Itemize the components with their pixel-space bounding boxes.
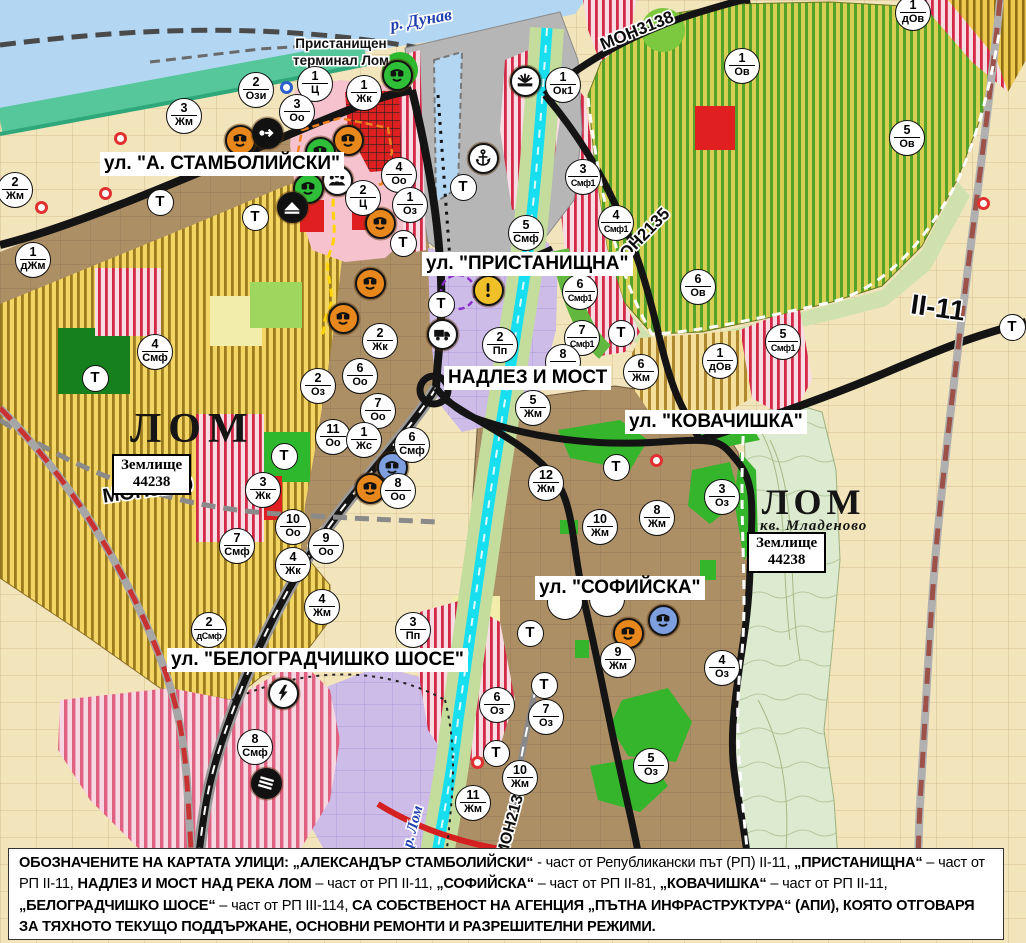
monument-icon	[333, 125, 364, 156]
one-way-arrow-icon	[252, 118, 283, 149]
street-label: ул. "БЕЛОГРАДЧИШКО ШОСЕ"	[167, 648, 468, 672]
zone-marker: 1Ок1	[545, 67, 581, 103]
zone-marker: 7Смф	[219, 528, 255, 564]
mound-icon	[277, 192, 308, 223]
zone-marker: 5Смф	[508, 215, 544, 251]
point-marker	[99, 187, 112, 200]
footer-text-run: НАДЛЕЗ И МОСТ НАД РЕКА ЛОМ	[78, 876, 312, 892]
plate-line1: Землище	[121, 457, 182, 474]
city-name: ЛОМ	[762, 482, 866, 522]
zone-marker: 7Оз	[528, 699, 564, 735]
zone-marker: 3Жк	[245, 472, 281, 508]
zone-marker: 6Оо	[342, 358, 378, 394]
plate-line2: 44238	[756, 552, 817, 569]
transport-stop-marker: Т	[517, 620, 544, 647]
zone-marker: 4Оз	[704, 650, 740, 686]
street-label: ул. "ПРИСТАНИЩНА"	[422, 252, 633, 276]
land-plate-44238-east: Землище 44238	[747, 532, 826, 573]
zone-marker: 2Жк	[362, 323, 398, 359]
footer-text-run: ОБОЗНАЧЕНИТЕ НА КАРТАТА УЛИЦИ: „АЛЕКСАНД…	[19, 855, 533, 871]
zone-marker: 4Смф1	[598, 205, 634, 241]
transport-stop-marker: Т	[271, 443, 298, 470]
anchor-icon	[468, 143, 499, 174]
zone-marker: 2дСмф	[191, 612, 227, 648]
monument-icon	[648, 605, 679, 636]
harbor-light-icon	[510, 66, 541, 97]
power-icon	[268, 678, 299, 709]
transport-stop-marker: Т	[390, 230, 417, 257]
city-label-lom: ЛОМ	[130, 408, 255, 450]
transport-stop-marker: Т	[82, 365, 109, 392]
zone-marker: 3Оо	[279, 94, 315, 130]
monument-icon	[225, 125, 256, 156]
zone-marker: 4Жм	[304, 589, 340, 625]
city-label-lom-mladenovo: ЛОМ кв. Младеново	[760, 484, 867, 535]
zone-marker: 3Жм	[166, 98, 202, 134]
street-label: ул. "А. СТАМБОЛИЙСКИ"	[100, 152, 344, 176]
zone-marker: 8Жм	[639, 500, 675, 536]
footer-text-run: – част от РП II-11,	[767, 876, 888, 892]
footer-note: ОБОЗНАЧЕНИТЕ НА КАРТАТА УЛИЦИ: „АЛЕКСАНД…	[8, 848, 1004, 940]
zone-marker: 6Оз	[479, 687, 515, 723]
zone-marker: 9Оо	[308, 528, 344, 564]
transport-stop-marker: Т	[531, 672, 558, 699]
transport-stop-marker: Т	[483, 740, 510, 767]
zone-marker: 4Смф	[137, 334, 173, 370]
zone-marker: 12Жм	[528, 465, 564, 501]
zone-marker: 10Жм	[582, 509, 618, 545]
zone-marker: 8Оо	[380, 473, 416, 509]
footer-text-run: – част от РП III-114,	[215, 898, 352, 914]
zone-marker: 1Жс	[346, 422, 382, 458]
point-marker	[977, 197, 990, 210]
zone-marker: 1Жк	[346, 75, 382, 111]
zone-marker: 1дЖм	[15, 242, 51, 278]
zone-marker: 8Смф	[237, 729, 273, 765]
transport-stop-marker: Т	[428, 291, 455, 318]
zone-marker: 2Пп	[482, 327, 518, 363]
zone-marker: 6Ов	[680, 269, 716, 305]
transport-stop-marker: Т	[450, 174, 477, 201]
transport-stop-marker: Т	[242, 204, 269, 231]
point-marker	[114, 132, 127, 145]
footer-text-run: – част от РП II-11,	[312, 876, 437, 892]
zone-marker: 6Жм	[623, 354, 659, 390]
city-plan-map: р. Дунав Пристанищен терминал Лом р. Лом…	[0, 0, 1026, 943]
zone-marker: 10Жм	[502, 760, 538, 796]
zone-marker: 6Смф	[394, 427, 430, 463]
footer-text-run: - част от Републикански път (РП) II-11,	[533, 855, 794, 871]
footer-text-run: „КОВАЧИШКА“	[660, 876, 767, 892]
zone-marker: 1дОв	[702, 343, 738, 379]
footer-text-run: „БЕЛОГРАДЧИШКО ШОСЕ“	[19, 898, 215, 914]
port-terminal-line1: Пристанищен	[266, 36, 416, 53]
point-marker	[35, 201, 48, 214]
point-marker	[471, 756, 484, 769]
zone-marker: 9Жм	[600, 642, 636, 678]
city-name: ЛОМ	[130, 406, 255, 452]
zone-marker: 5Жм	[515, 390, 551, 426]
warning-icon	[473, 275, 504, 306]
footer-text-run: „ПРИСТАНИЩНА“	[794, 855, 922, 871]
zone-marker: 10Оо	[275, 509, 311, 545]
monument-icon	[382, 60, 413, 91]
footer-text-run: „СОФИЙСКА“	[436, 876, 534, 892]
railway-icon	[251, 768, 282, 799]
point-marker	[650, 454, 663, 467]
zone-marker: 3Оз	[704, 479, 740, 515]
zone-marker: 2Ц	[345, 180, 381, 216]
street-label: ул. "СОФИЙСКА"	[535, 576, 705, 600]
zone-marker: 6Смф1	[562, 274, 598, 310]
plate-line2: 44238	[121, 474, 182, 491]
zone-marker: 1Ов	[724, 48, 760, 84]
zone-marker: 2Оз	[300, 368, 336, 404]
transport-stop-marker: Т	[999, 314, 1026, 341]
monument-icon	[328, 303, 359, 334]
zone-marker: 2Ози	[238, 72, 274, 108]
zone-marker: 11Жм	[455, 785, 491, 821]
truck-icon	[427, 319, 458, 350]
monument-icon	[355, 268, 386, 299]
zone-marker: 4Жк	[275, 547, 311, 583]
land-plate-44238-west: Землище 44238	[112, 454, 191, 495]
zone-marker: 1Оз	[392, 187, 428, 223]
zone-marker: 3Смф1	[565, 159, 601, 195]
point-marker	[280, 81, 293, 94]
transport-stop-marker: Т	[603, 454, 630, 481]
transport-stop-marker: Т	[147, 189, 174, 216]
zone-marker: 5Оз	[633, 748, 669, 784]
footer-text-run: – част от РП II-81,	[534, 876, 660, 892]
transport-stop-marker: Т	[608, 320, 635, 347]
zone-marker: 3Пп	[395, 612, 431, 648]
street-label: НАДЛЕЗ И МОСТ	[444, 366, 611, 390]
plate-line1: Землище	[756, 535, 817, 552]
street-label: ул. "КОВАЧИШКА"	[625, 410, 807, 434]
zone-marker: 5Ов	[889, 120, 925, 156]
zone-marker: 5Смф1	[765, 324, 801, 360]
